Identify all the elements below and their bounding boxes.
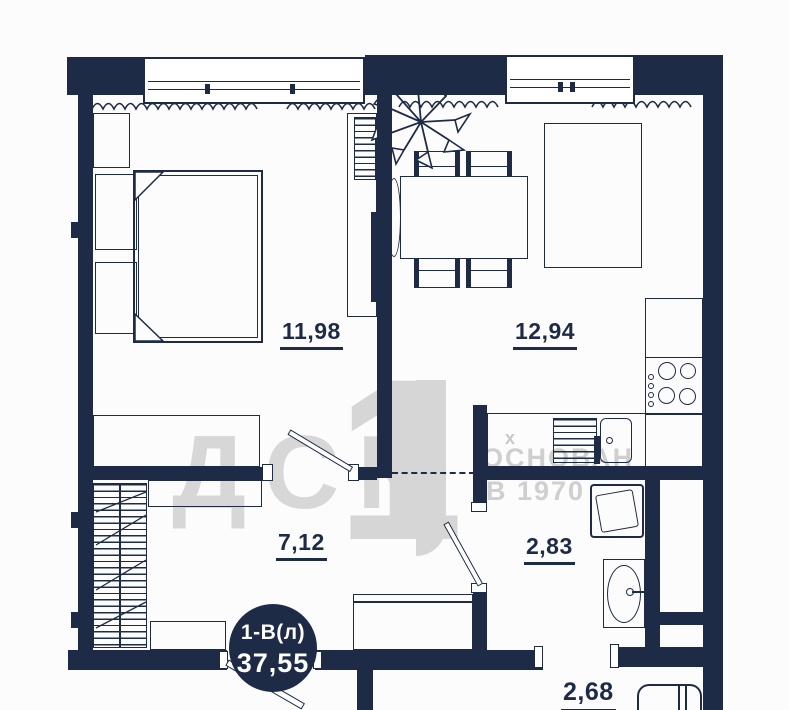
watermark-logo-bar: [416, 380, 446, 556]
wall-below-vertical: [357, 670, 373, 710]
hall-cabinet-bottom: [150, 621, 226, 650]
chair: [414, 255, 460, 288]
door-jamb: [534, 646, 543, 668]
room-label-hallway: 7,12: [276, 529, 327, 561]
stove-burner: [658, 387, 675, 404]
wall-left-nub-1: [71, 222, 78, 238]
wall-hall-bottom-mid: [315, 650, 543, 670]
kitchen-sink-drain: [606, 437, 613, 444]
chair-bar: [471, 270, 507, 272]
watermark-founded-year: В 1970: [486, 476, 585, 507]
bed: [133, 170, 263, 343]
unit-badge: 1-В(л) 37,55: [229, 604, 317, 692]
chair-bar: [471, 166, 507, 168]
stove-knob: [648, 401, 654, 407]
sofa: [544, 123, 642, 268]
unit-type-label: 1-В(л): [229, 621, 317, 645]
window-handle: [205, 84, 210, 94]
floor-plan: ДСК 1 ОСНОВАН В 1970 х: [0, 0, 789, 710]
hall-cabinet-top: [148, 480, 262, 507]
toilet-line: [678, 686, 680, 710]
open-passage-dashed-line: [392, 472, 475, 474]
wall-left-nub-2: [71, 512, 78, 528]
window-handle: [570, 82, 575, 92]
wall-bedroom-kitchen: [377, 93, 392, 478]
stove-knob: [648, 374, 654, 380]
window-handle: [558, 82, 563, 92]
sink-drainboard: [553, 418, 597, 463]
window-handle: [290, 84, 295, 94]
kitchen-window: [505, 55, 635, 104]
stove-burner: [679, 388, 696, 405]
pillow: [95, 174, 137, 250]
wall-hall-bottom-left: [68, 650, 227, 670]
wall-left: [78, 93, 93, 653]
room-label-bedroom: 11,98: [280, 318, 343, 350]
washing-machine-drum: [595, 489, 639, 533]
wardrobe: [93, 483, 147, 648]
door-jamb: [262, 464, 273, 481]
shoe-bench-line: [354, 601, 472, 603]
toilet: [637, 684, 702, 710]
dresser: [93, 415, 260, 467]
tv: [371, 212, 376, 302]
wall-kitchen-bottom: [475, 467, 723, 480]
stove-knob: [648, 392, 654, 398]
wall-bedroom-bottom-right: [357, 467, 377, 480]
kitchen-sink: [600, 418, 632, 463]
bedroom-window: [143, 57, 365, 104]
wall-bathroom-left-top: [473, 405, 487, 512]
dining-table: [400, 176, 528, 259]
chair-bar: [419, 166, 455, 168]
wall-left-nub-3: [71, 612, 78, 628]
room-label-bathroom: 2,83: [524, 533, 575, 565]
door-jamb: [471, 502, 487, 512]
toilet-line: [685, 686, 687, 710]
chair-bar: [419, 270, 455, 272]
chair: [466, 255, 512, 288]
bedside-cabinet: [93, 113, 130, 168]
bathroom-sink-bowl: [607, 565, 641, 623]
wall-bathroom-bottom: [612, 647, 723, 667]
stove-burner: [680, 363, 696, 379]
wall-top-mid: [365, 55, 505, 95]
shoe-bench: [353, 594, 473, 650]
door-jamb: [610, 644, 619, 668]
unit-total-area: 37,55: [229, 648, 317, 679]
wall-top-left: [67, 57, 143, 95]
room-label-kitchen: 12,94: [513, 318, 577, 350]
wardrobe-divider: [119, 484, 121, 647]
wall-bedroom-bottom-left: [93, 467, 263, 480]
radiator: [354, 117, 376, 180]
window-sill-line: [148, 81, 360, 90]
wall-bathroom-left-bottom: [473, 593, 487, 650]
pillow: [95, 262, 137, 334]
bathroom-faucet: [632, 591, 645, 593]
wall-bathroom-duct: [645, 480, 660, 647]
bed-inner-line: [138, 175, 258, 338]
stove-burner: [658, 362, 676, 380]
wall-right: [703, 55, 723, 710]
wall-duct-bottom: [660, 612, 703, 625]
kitchen-faucet: [594, 436, 600, 464]
room-label-wc: 2,68: [561, 678, 616, 710]
stove-knob: [648, 383, 654, 389]
